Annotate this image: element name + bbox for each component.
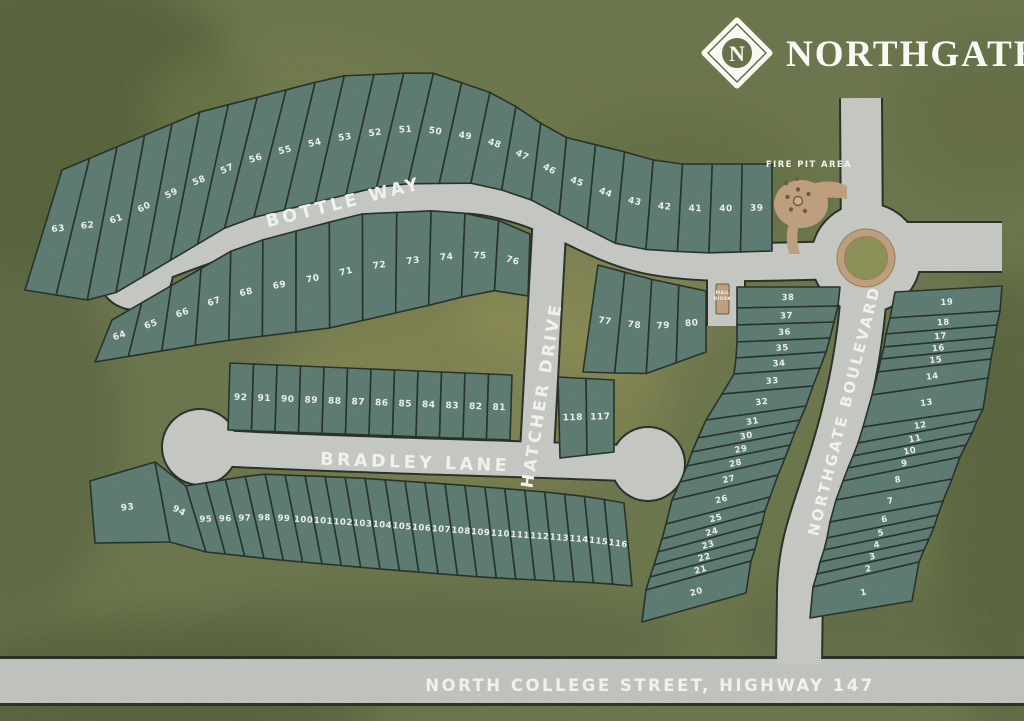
grain-overlay xyxy=(0,0,1024,721)
site-plan: 6362616059585756555453525150494847464544… xyxy=(0,0,1024,721)
site-plan-map: 6362616059585756555453525150494847464544… xyxy=(0,0,1024,721)
